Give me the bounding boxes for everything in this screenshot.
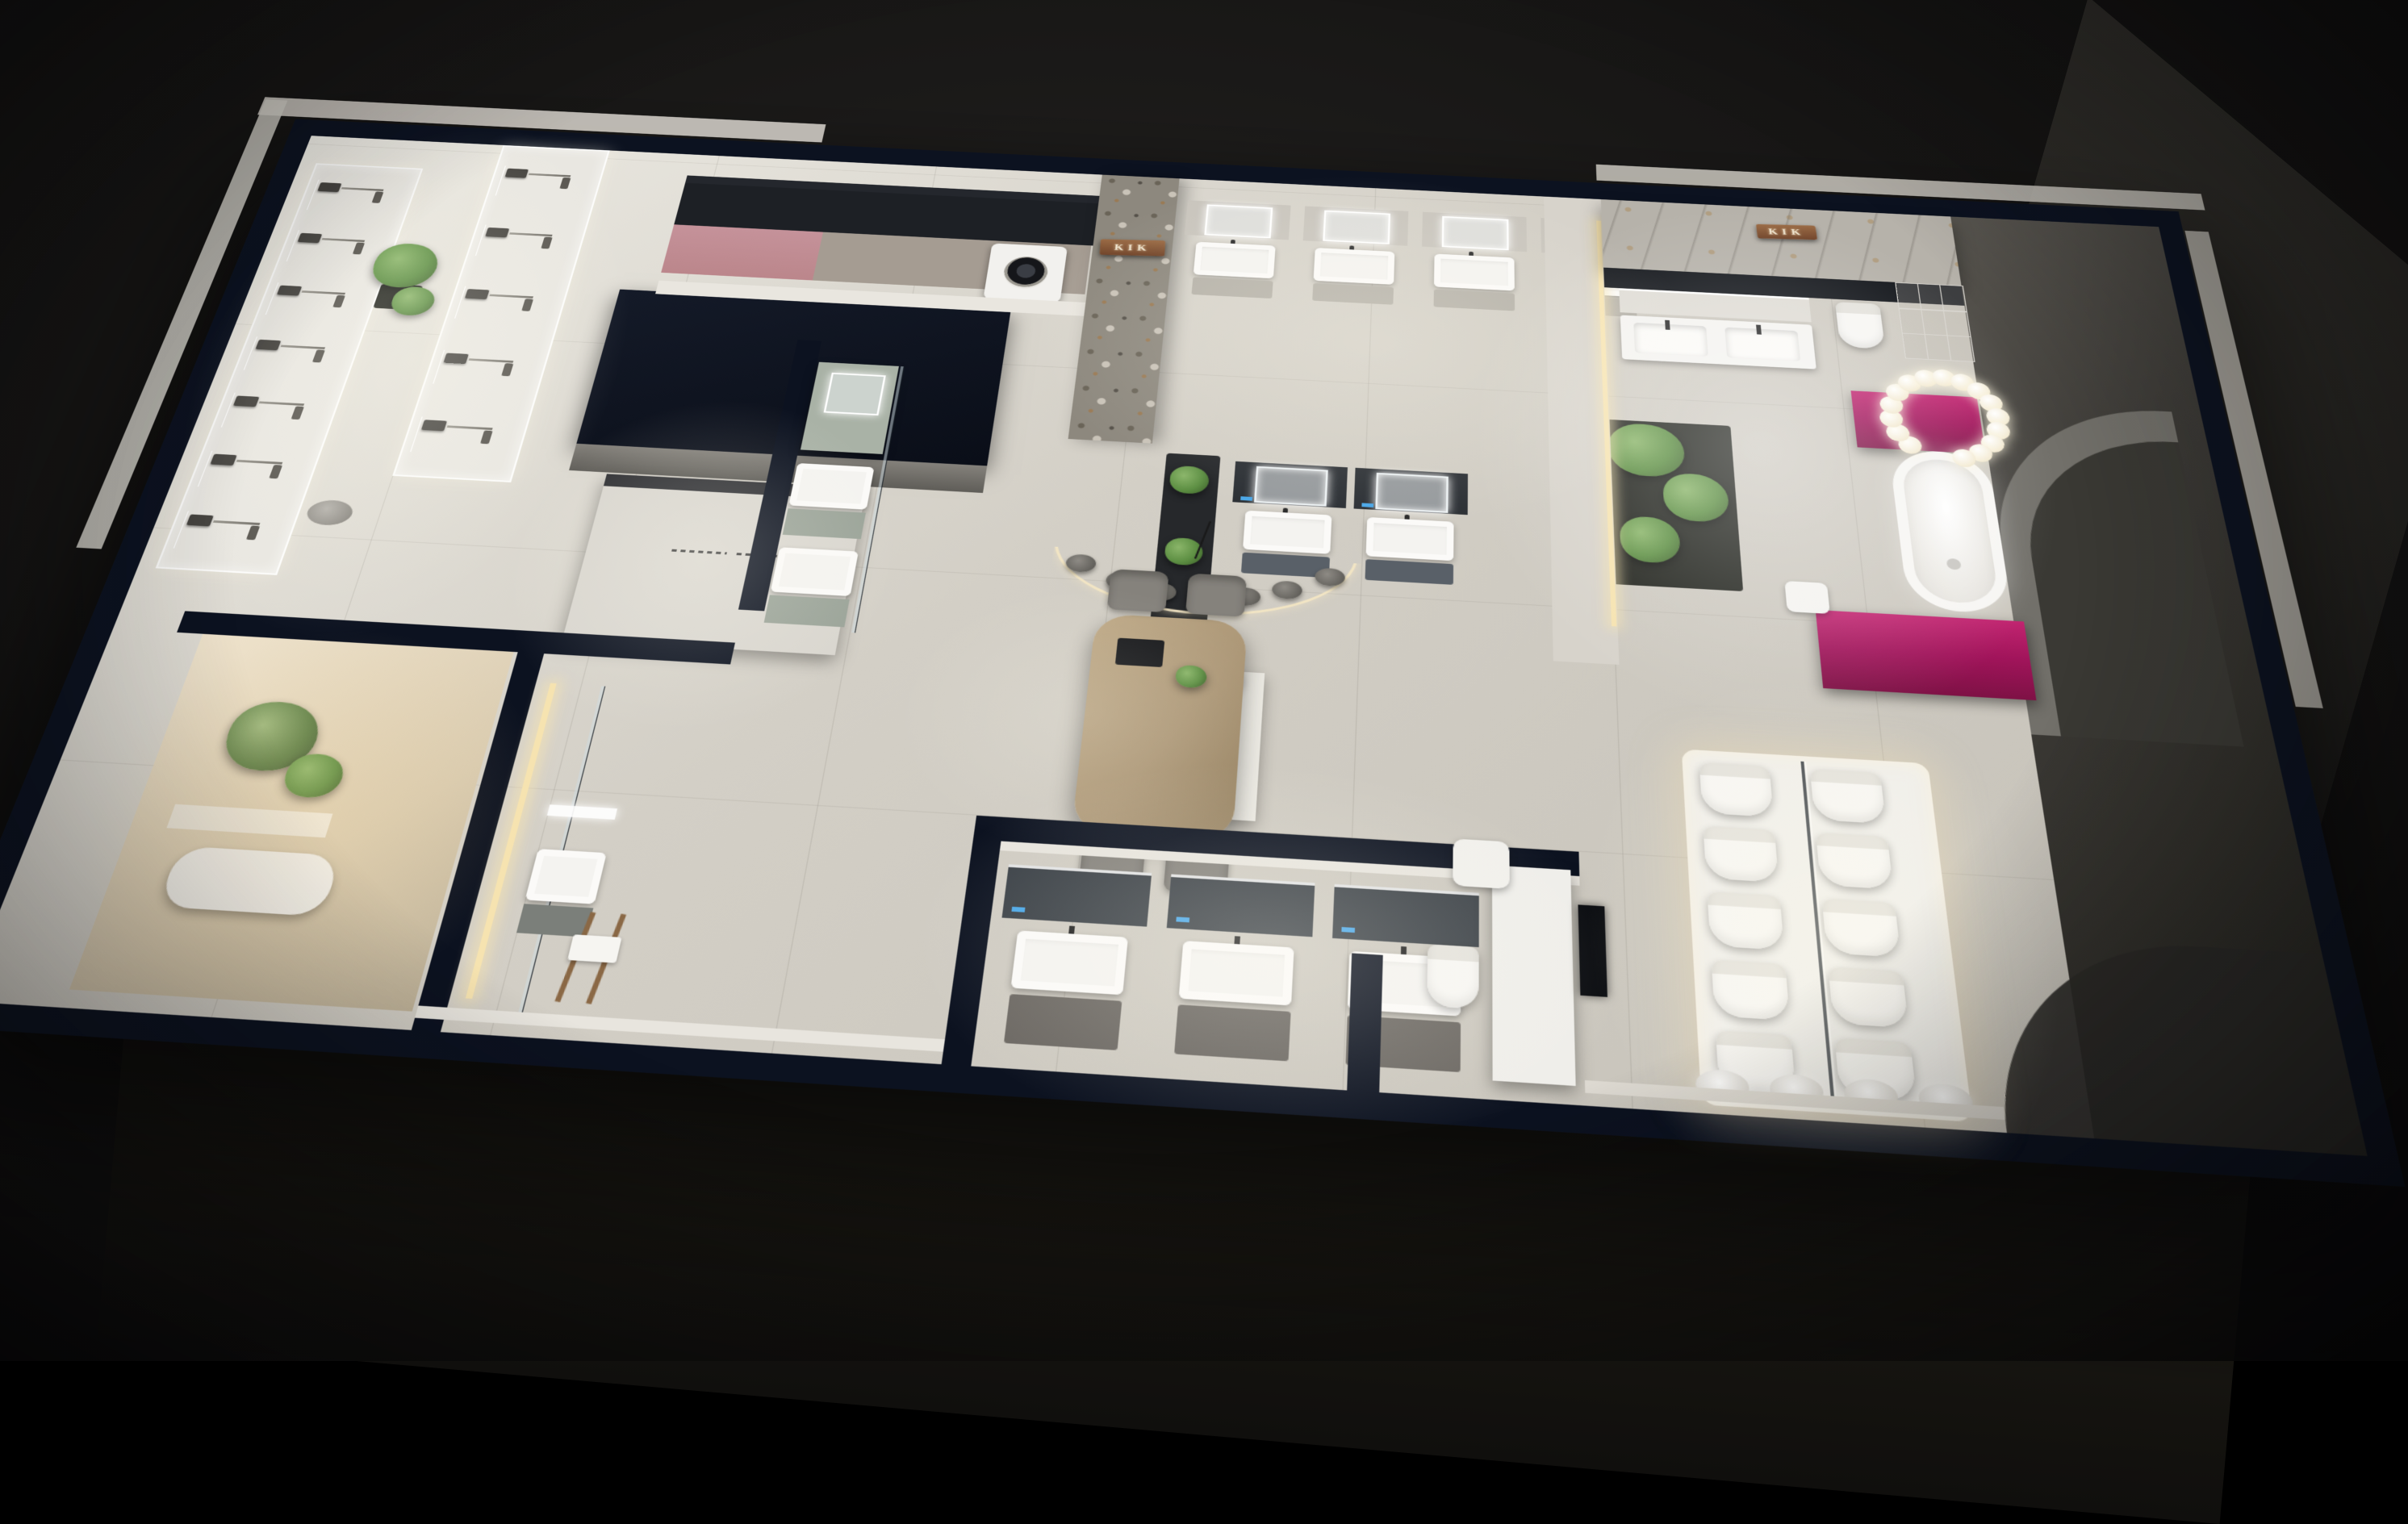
faucet <box>1665 320 1670 330</box>
glass-cubby-shelf <box>1895 282 1975 362</box>
lounge-chair <box>1185 574 1247 617</box>
table-tray <box>1115 638 1164 667</box>
faucet <box>1756 324 1762 334</box>
island-vanity-unit <box>1351 468 1468 591</box>
suite-toilet <box>1835 302 1885 349</box>
wall-vanity-unit <box>1299 206 1408 309</box>
white-chair <box>1453 838 1510 889</box>
shower-fixture <box>194 450 314 492</box>
wall-vanity-unit <box>1178 200 1291 303</box>
double-vanity <box>1619 288 1816 369</box>
cabinet <box>764 595 850 627</box>
cabinet <box>783 508 866 539</box>
tv-screen <box>1578 904 1607 997</box>
lounge-chair <box>1107 569 1169 612</box>
brand-plaque-marble-text: KIK <box>1767 227 1805 238</box>
led-mirror <box>824 373 886 415</box>
shower-fixture <box>406 416 523 457</box>
shower-fixture <box>429 350 544 390</box>
shower-fixture <box>169 511 292 554</box>
brand-plaque-marble: KIK <box>1756 224 1817 240</box>
display-toilet <box>1703 826 1779 883</box>
display-toilet <box>1810 769 1886 824</box>
sage-vanity <box>763 547 859 628</box>
mirror-sliver <box>547 804 617 820</box>
showroom-floorplan: KIK <box>0 119 2405 1188</box>
sage-mirror-cabinet <box>801 362 899 454</box>
shower-fixture <box>471 224 580 261</box>
laundry-pink-panel <box>661 224 823 280</box>
washing-machine <box>983 243 1067 303</box>
shower-fixture <box>451 286 562 324</box>
shower-fixture <box>261 282 374 320</box>
display-toilet <box>1707 891 1784 950</box>
table-plant-sprig <box>1175 665 1207 688</box>
display-toilet <box>1828 967 1908 1028</box>
bubble-chandelier <box>1866 361 2025 477</box>
display-toilet <box>1816 833 1893 890</box>
display-toilet <box>1822 899 1901 958</box>
dome-pendant-lamp <box>303 499 357 527</box>
shower-fixture <box>303 180 412 215</box>
sage-vanity <box>782 463 874 541</box>
wall-vanity-unit <box>1420 212 1528 316</box>
brand-plaque-stone: KIK <box>1100 239 1166 256</box>
white-chaise <box>158 846 341 916</box>
display-toilet <box>1699 762 1774 817</box>
pendant-disc <box>1065 553 1097 573</box>
suite-basin <box>525 849 607 904</box>
glass-shower-panel <box>518 686 604 1012</box>
tub-drain <box>1946 558 1961 570</box>
shower-fixture <box>240 336 355 375</box>
basin <box>1633 323 1708 357</box>
lower-vanity-unit <box>985 864 1152 1054</box>
shower-fixture <box>491 165 599 200</box>
brand-plaque-stone-text: KIK <box>1114 242 1151 253</box>
pendant-disc <box>1272 580 1303 599</box>
shower-display-panel-top <box>392 145 610 482</box>
washer-door <box>1001 256 1050 290</box>
basin <box>1724 328 1800 361</box>
smart-toilet <box>1427 944 1479 1009</box>
basin <box>771 547 859 596</box>
curved-shadow-wall <box>1980 933 2368 1156</box>
tv-console <box>1492 865 1576 1086</box>
toilet-display-platform <box>1682 749 1973 1122</box>
magenta-console <box>1816 610 2037 700</box>
front-wall-stub <box>1347 953 1383 1092</box>
lower-vanity-unit <box>1156 875 1315 1065</box>
shower-fixture <box>217 392 335 432</box>
meeting-table <box>1071 613 1248 841</box>
white-stool <box>1784 581 1829 614</box>
display-toilet <box>1712 959 1790 1021</box>
basin <box>788 463 874 510</box>
towel <box>567 934 621 963</box>
desk-logo-mark <box>671 549 727 555</box>
pendant-disc <box>1315 567 1345 587</box>
